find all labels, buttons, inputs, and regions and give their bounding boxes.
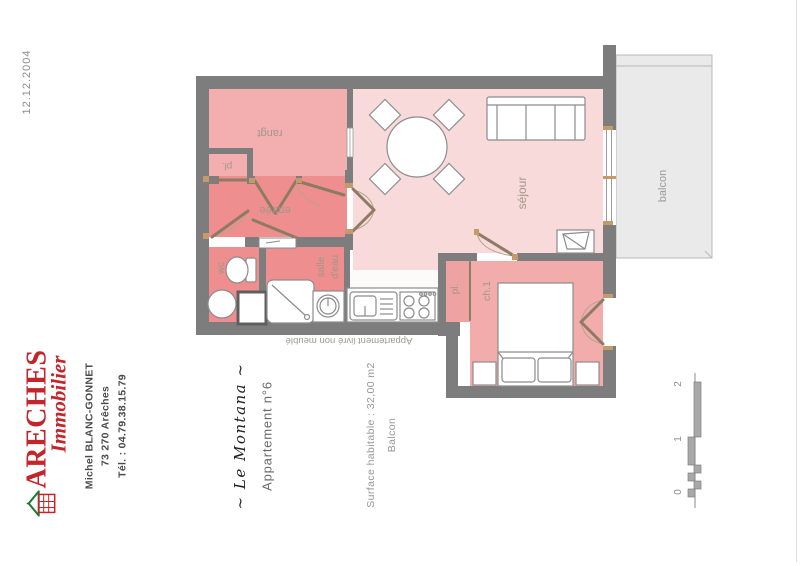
label-balcon: balcon (657, 170, 669, 202)
dining-table (387, 117, 447, 177)
floorplan-page: 12.12.2004 ARECHES Immobilier Michel BLA… (0, 0, 800, 566)
shower (267, 280, 314, 323)
nightstand (473, 362, 496, 385)
label-note: Appartement livré non meublé (286, 335, 413, 346)
balcony (616, 55, 712, 258)
floorplan-drawing: rangt pl. entrée wc salle d'eau pl. ch.1… (0, 0, 800, 566)
technical-duct (238, 292, 266, 324)
kitchen-counter (347, 288, 438, 322)
tv-unit (557, 230, 594, 253)
label-salle: salle (316, 256, 327, 277)
label-entree: entrée (259, 204, 290, 216)
label-rangt: rangt (257, 127, 282, 139)
label-pl2: pl. (450, 284, 461, 295)
bed (498, 283, 573, 386)
label-pl1: pl. (222, 160, 233, 171)
label-deau: d'eau (330, 255, 341, 279)
scale-bar: 2 1 0 (673, 373, 701, 508)
washing-machine (313, 291, 344, 322)
entrance-door-sill (259, 238, 296, 248)
nightstand (576, 362, 599, 385)
scale-2: 2 (673, 381, 684, 387)
label-sejour: séjour (515, 177, 529, 210)
toilet (226, 257, 256, 283)
scale-0: 0 (673, 489, 684, 495)
scale-1: 1 (673, 436, 684, 442)
label-ch1: ch.1 (481, 281, 493, 301)
label-wc: wc (216, 262, 227, 275)
washbasin (208, 290, 236, 318)
sofa (487, 97, 585, 140)
